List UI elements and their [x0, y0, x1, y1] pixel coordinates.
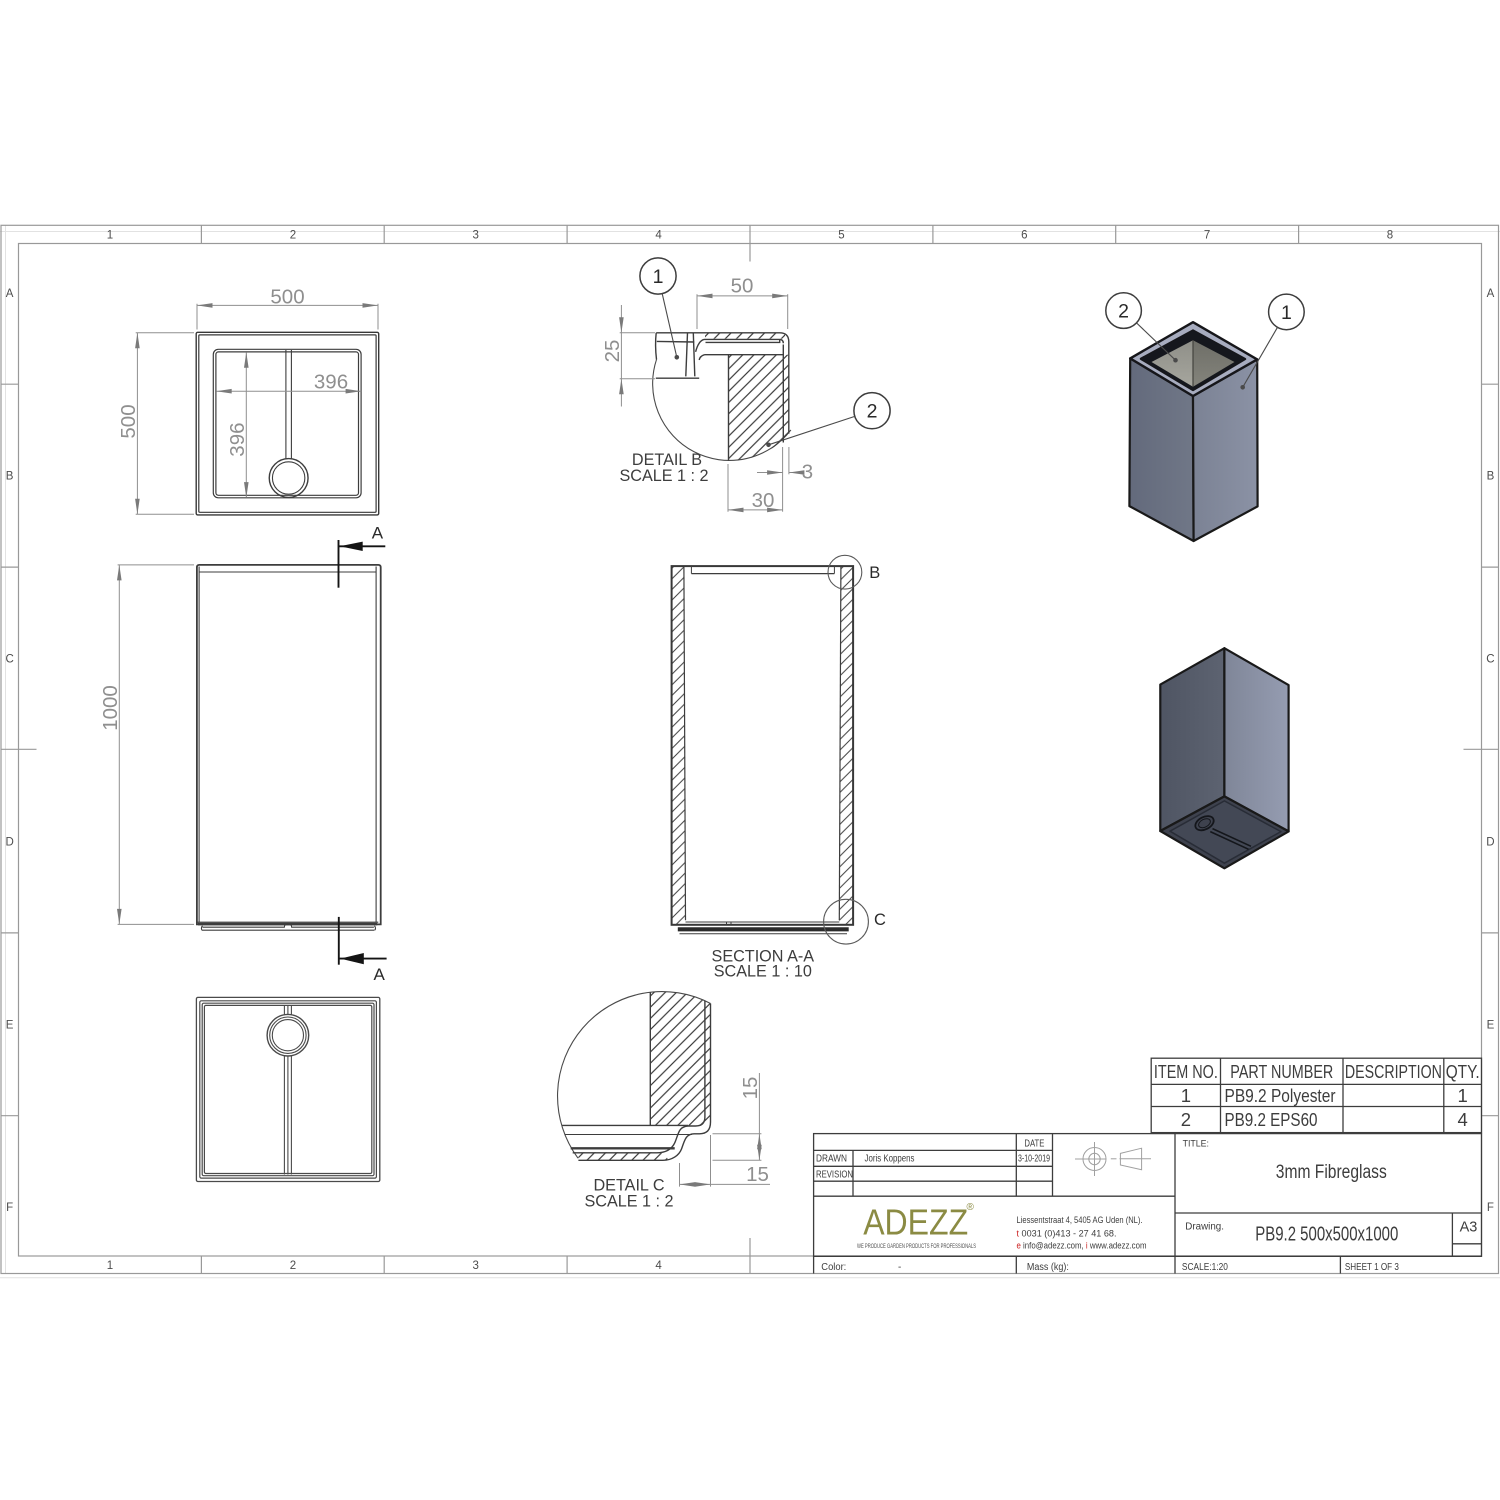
svg-text:4: 4 [655, 1260, 662, 1272]
svg-text:REVISION: REVISION [816, 1170, 853, 1181]
svg-text:Color:: Color: [821, 1262, 846, 1273]
svg-text:ITEM NO.: ITEM NO. [1154, 1061, 1218, 1082]
svg-text:396: 396 [314, 370, 348, 393]
svg-text:DATE: DATE [1024, 1139, 1044, 1150]
svg-text:1: 1 [1458, 1085, 1468, 1106]
svg-text:D: D [5, 836, 13, 848]
svg-text:1: 1 [1181, 1085, 1191, 1106]
svg-text:PART NUMBER: PART NUMBER [1230, 1061, 1333, 1082]
svg-text:A: A [6, 288, 14, 300]
svg-text:ADEZZ: ADEZZ [863, 1202, 968, 1243]
svg-text:B: B [869, 564, 880, 582]
svg-text:C: C [1486, 654, 1494, 666]
svg-text:3: 3 [472, 229, 478, 241]
svg-text:15: 15 [746, 1163, 769, 1186]
svg-text:B: B [6, 471, 14, 483]
svg-text:500: 500 [117, 404, 140, 438]
svg-text:1: 1 [107, 229, 113, 241]
svg-text:3mm Fibreglass: 3mm Fibreglass [1276, 1162, 1387, 1183]
svg-text:PB9.2 Polyester: PB9.2 Polyester [1225, 1085, 1336, 1106]
svg-text:3: 3 [802, 461, 813, 484]
svg-text:1000: 1000 [99, 685, 122, 731]
svg-text:Joris Koppens: Joris Koppens [865, 1154, 915, 1165]
svg-text:1: 1 [653, 266, 664, 288]
svg-text:e info@adezz.com, i www.adezz.: e info@adezz.com, i www.adezz.com [1017, 1241, 1147, 1252]
svg-text:®: ® [967, 1202, 975, 1213]
svg-text:2: 2 [290, 1260, 296, 1272]
svg-text:D: D [1486, 836, 1494, 848]
svg-text:C: C [5, 654, 13, 666]
svg-text:8: 8 [1387, 229, 1393, 241]
svg-text:WE PRODUCE GARDEN PRODUCTS FOR: WE PRODUCE GARDEN PRODUCTS FOR PROFESSIO… [857, 1243, 976, 1250]
svg-text:2: 2 [290, 229, 296, 241]
svg-text:SHEET 1 OF 3: SHEET 1 OF 3 [1345, 1262, 1399, 1273]
svg-text:3: 3 [472, 1260, 478, 1272]
svg-text:4: 4 [655, 229, 662, 241]
svg-text:t 0031 (0)413 - 27 41 68.: t 0031 (0)413 - 27 41 68. [1017, 1228, 1117, 1239]
svg-text:6: 6 [1021, 229, 1027, 241]
svg-text:A: A [1487, 288, 1495, 300]
svg-text:PB9.2 500x500x1000: PB9.2 500x500x1000 [1255, 1223, 1398, 1245]
svg-text:DRAWN: DRAWN [816, 1154, 847, 1165]
svg-text:C: C [874, 911, 886, 929]
svg-text:F: F [1487, 1202, 1494, 1214]
svg-text:SCALE 1 : 10: SCALE 1 : 10 [714, 963, 812, 981]
svg-text:PB9.2 EPS60: PB9.2 EPS60 [1225, 1109, 1318, 1130]
svg-text:1: 1 [1281, 302, 1292, 324]
svg-text:15: 15 [739, 1077, 762, 1100]
svg-text:2: 2 [1181, 1109, 1191, 1130]
svg-text:25: 25 [601, 340, 624, 363]
svg-text:Drawing.: Drawing. [1185, 1222, 1224, 1233]
svg-text:50: 50 [731, 275, 754, 298]
svg-text:DESCRIPTION: DESCRIPTION [1345, 1061, 1442, 1082]
svg-text:500: 500 [270, 285, 304, 308]
svg-text:396: 396 [226, 422, 249, 456]
svg-text:2: 2 [867, 401, 878, 423]
svg-text:4: 4 [1458, 1109, 1468, 1130]
svg-text:3-10-2019: 3-10-2019 [1018, 1154, 1050, 1165]
svg-text:SCALE 1 : 2: SCALE 1 : 2 [584, 1193, 673, 1211]
svg-text:A3: A3 [1460, 1220, 1478, 1236]
svg-text:2: 2 [1118, 301, 1129, 323]
svg-text:TITLE:: TITLE: [1183, 1139, 1209, 1149]
svg-text:A: A [372, 524, 384, 543]
svg-text:Mass (kg):: Mass (kg): [1027, 1262, 1069, 1273]
svg-text:1: 1 [107, 1260, 113, 1272]
svg-text:A: A [374, 965, 386, 984]
svg-text:30: 30 [752, 489, 775, 512]
svg-text:E: E [1487, 1019, 1495, 1031]
svg-text:B: B [1487, 471, 1495, 483]
svg-text:5: 5 [838, 229, 844, 241]
svg-text:SCALE:1:20: SCALE:1:20 [1182, 1262, 1228, 1273]
svg-text:QTY.: QTY. [1446, 1061, 1480, 1082]
svg-text:7: 7 [1204, 229, 1210, 241]
svg-text:SCALE 1 : 2: SCALE 1 : 2 [619, 467, 708, 485]
svg-text:E: E [6, 1019, 14, 1031]
svg-text:-: - [898, 1262, 901, 1273]
svg-text:F: F [6, 1202, 13, 1214]
svg-text:Liessentstraat 4, 5405 AG Uden: Liessentstraat 4, 5405 AG Uden (NL). [1017, 1215, 1143, 1226]
